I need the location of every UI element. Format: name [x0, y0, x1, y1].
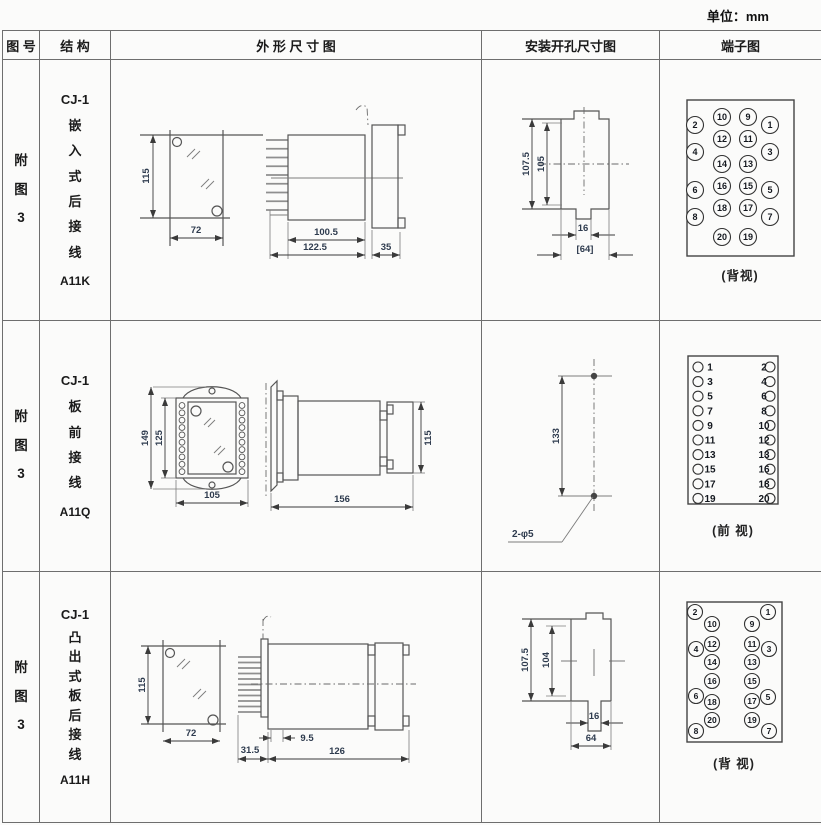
- terminal-number: 2: [693, 607, 698, 617]
- outline-svg-a11h: 115 72 9.5: [111, 572, 481, 822]
- structure-label: 板 前 接 线: [68, 394, 81, 495]
- dim-total-depth: 126: [329, 746, 345, 757]
- screw-hole-icon: [173, 138, 182, 147]
- mounting-svg-a11h: 107.5 104 16 64: [482, 572, 659, 822]
- dim-notch-width: 16: [589, 711, 600, 722]
- terminal-number: 17: [704, 479, 716, 490]
- terminal-svg-a11q: 1234567891011121313151617181920 (前 视): [660, 321, 821, 571]
- mounting-svg-a11k: 107.5 105 16 [64]: [482, 60, 659, 320]
- dim-stud-depth: 9.5: [300, 733, 314, 744]
- screw-hole-icon: [212, 206, 222, 216]
- header-fig-no: 图 号: [3, 31, 39, 59]
- terminal-number: 3: [767, 147, 772, 157]
- terminal-view-caption: (背视): [721, 268, 758, 283]
- terminal-svg-a11k: 2109141211314136161558181772019 (背视): [660, 60, 821, 320]
- terminal-number: 15: [743, 181, 753, 191]
- terminal-number: 1: [766, 607, 771, 617]
- dim-flange-depth: 35: [381, 242, 392, 253]
- dim-cutout-width: 64: [586, 733, 597, 744]
- screw-hole-icon: [191, 406, 201, 416]
- terminal-number: 19: [743, 232, 753, 242]
- terminal-number: 19: [747, 715, 757, 725]
- terminal-number: 12: [707, 639, 717, 649]
- terminal-number: 20: [758, 494, 770, 505]
- hatch-mark: [201, 179, 214, 189]
- terminal-number: 7: [767, 726, 772, 736]
- outline-drawing-a11k: 115 72 100.5 122.5: [111, 60, 481, 320]
- terminal-number: 13: [758, 450, 770, 461]
- terminal-number: 9: [750, 619, 755, 629]
- terminal-number: 12: [758, 436, 770, 447]
- terminal-number: 15: [704, 465, 716, 476]
- terminal-number: 5: [766, 692, 771, 702]
- terminal-number: 13: [747, 657, 757, 667]
- terminal-number: 9: [745, 112, 750, 122]
- terminal-number: 17: [747, 696, 757, 706]
- outline-svg-a11k: 115 72 100.5 122.5: [111, 60, 481, 320]
- terminal-number: 11: [743, 134, 753, 144]
- mounting-hole-icon: [591, 373, 597, 379]
- terminal-number: 13: [704, 450, 716, 461]
- terminal-number: 14: [707, 657, 717, 667]
- hole-spec-label: 2-φ5: [512, 529, 534, 540]
- terminal-number: 16: [707, 676, 717, 686]
- model-label: CJ-1: [61, 92, 89, 107]
- dim-side-length: 156: [334, 494, 350, 505]
- dim-cutout-h2: 104: [541, 651, 552, 668]
- terminal-grid: 2109141211314131615618175201987: [688, 605, 777, 739]
- terminal-number: 16: [717, 181, 727, 191]
- header-outline-dims: 外 形 尺 寸 图: [111, 31, 481, 59]
- fig-no-a11q: 附 图 3: [3, 321, 39, 571]
- terminal-pin: [693, 406, 703, 416]
- dim-side-height: 115: [423, 430, 434, 446]
- code-label: A11Q: [60, 505, 91, 519]
- terminal-number: 20: [707, 715, 717, 725]
- dim-front-height: 115: [137, 677, 148, 693]
- datasheet-page: 单位：mm 图 号 结 构 外 形 尺 寸 图 安装开孔尺寸图 端子图 附 图 …: [0, 0, 821, 825]
- terminal-number: 3: [707, 377, 713, 388]
- terminal-number: 19: [704, 494, 716, 505]
- hatch-mark: [177, 659, 190, 669]
- structure-a11k: CJ-1 嵌 入 式 后 接 线 A11K: [40, 60, 110, 320]
- header-terminal-diagram: 端子图: [660, 31, 821, 59]
- terminal-number: 17: [743, 203, 753, 213]
- terminal-number: 10: [717, 112, 727, 122]
- dim-cutout-h2: 105: [536, 155, 547, 172]
- dim-hole-pitch: 133: [551, 428, 562, 444]
- mounting-drawing-a11h: 107.5 104 16 64: [482, 572, 659, 822]
- code-label: A11K: [60, 274, 90, 288]
- terminal-grid: 2109141211314136161558181772019: [687, 109, 779, 246]
- model-label: CJ-1: [61, 373, 89, 388]
- terminal-grid: 1234567891011121313151617181920: [693, 362, 775, 505]
- terminal-pin: [693, 479, 703, 489]
- panel-centerline: [356, 106, 368, 125]
- terminal-svg-a11h: 2109141211314131615618175201987 (背 视): [660, 572, 821, 822]
- terminal-number: 1: [767, 120, 772, 130]
- terminal-pin: [693, 464, 703, 474]
- dim-notch-width: 16: [578, 223, 589, 234]
- terminal-pins-comb: [266, 140, 288, 210]
- outline-drawing-a11h: 115 72 9.5: [111, 572, 481, 822]
- terminal-pin: [693, 362, 703, 372]
- code-label: A11H: [60, 773, 90, 787]
- terminal-number: 20: [717, 232, 727, 242]
- dim-body-depth: 100.5: [314, 227, 338, 238]
- fig-no-a11h: 附 图 3: [3, 572, 39, 822]
- terminal-pin: [693, 450, 703, 460]
- panel-centerline: [263, 616, 271, 639]
- terminal-number: 5: [707, 392, 713, 403]
- terminal-number: 18: [758, 479, 770, 490]
- terminal-drawing-a11k: 2109141211314136161558181772019 (背视): [660, 60, 821, 320]
- dim-front-height-outer: 149: [140, 430, 151, 446]
- terminal-number: 8: [761, 406, 767, 417]
- structure-label: 嵌 入 式 后 接 线: [68, 113, 81, 265]
- terminal-number: 4: [761, 377, 767, 388]
- structure-a11h: CJ-1 凸 出 式 板 后 接 线 A11H: [40, 572, 110, 822]
- flange-hole-icon: [209, 388, 215, 394]
- fig-no-a11k: 附 图 3: [3, 60, 39, 320]
- dim-front-width: 72: [191, 225, 202, 236]
- outline-drawing-a11q: 149 125 105: [111, 321, 481, 571]
- terminal-number: 7: [767, 212, 772, 222]
- hatch-mark: [214, 446, 225, 455]
- mounting-svg-a11q: 133 2-φ5: [482, 321, 659, 571]
- terminal-pin: [693, 391, 703, 401]
- dim-front-height: 115: [141, 168, 152, 184]
- terminal-number: 15: [747, 676, 757, 686]
- mounting-drawing-a11q: 133 2-φ5: [482, 321, 659, 571]
- dim-cutout-width: [64]: [577, 244, 594, 255]
- terminal-number: 10: [758, 421, 770, 432]
- outline-svg-a11q: 149 125 105: [111, 321, 481, 571]
- terminal-number: 2: [692, 120, 697, 130]
- flange-hole-icon: [209, 482, 215, 488]
- terminal-drawing-a11h: 2109141211314131615618175201987 (背 视): [660, 572, 821, 822]
- terminal-number: 14: [717, 159, 727, 169]
- hatch-mark: [204, 418, 215, 427]
- terminal-number: 18: [717, 203, 727, 213]
- terminal-number: 5: [767, 185, 772, 195]
- dim-cutout-h1: 107.5: [520, 647, 531, 671]
- terminal-pin: [693, 493, 703, 503]
- hatch-mark: [187, 149, 200, 159]
- terminal-strip-right: [239, 403, 245, 475]
- screw-hole-icon: [223, 462, 233, 472]
- dim-front-width: 105: [204, 490, 221, 501]
- terminal-pin: [693, 435, 703, 445]
- dim-cutout-h1: 107.5: [521, 151, 532, 175]
- terminal-number: 18: [707, 697, 717, 707]
- dim-front-width: 72: [186, 728, 197, 739]
- structure-a11q: CJ-1 板 前 接 线 A11Q: [40, 321, 110, 571]
- terminal-number: 4: [692, 147, 697, 157]
- terminal-number: 2: [761, 363, 767, 374]
- terminal-number: 10: [707, 619, 717, 629]
- unit-label: 单位：mm: [707, 6, 769, 25]
- dim-total-depth: 122.5: [303, 242, 327, 253]
- terminal-pin: [693, 420, 703, 430]
- spec-table: 图 号 结 构 外 形 尺 寸 图 安装开孔尺寸图 端子图 附 图 3 CJ-1…: [2, 30, 821, 823]
- terminal-pins-comb: [238, 657, 261, 712]
- terminal-number: 12: [717, 134, 727, 144]
- terminal-number: 6: [692, 185, 697, 195]
- terminal-number: 3: [767, 644, 772, 654]
- dim-front-height-inner: 125: [154, 429, 165, 446]
- hatch-mark: [193, 689, 206, 699]
- model-label: CJ-1: [61, 607, 89, 622]
- terminal-pin: [693, 377, 703, 387]
- terminal-number: 11: [705, 436, 716, 447]
- terminal-number: 4: [694, 644, 699, 654]
- terminal-drawing-a11q: 1234567891011121313151617181920 (前 视): [660, 321, 821, 571]
- terminal-number: 8: [692, 212, 697, 222]
- terminal-number: 6: [761, 392, 767, 403]
- screw-hole-icon: [166, 649, 175, 658]
- terminal-view-caption: (背 视): [713, 756, 755, 771]
- mounting-drawing-a11k: 107.5 105 16 [64]: [482, 60, 659, 320]
- terminal-number: 16: [758, 465, 770, 476]
- dim-pin-depth: 31.5: [241, 745, 260, 756]
- terminal-strip-left: [179, 403, 185, 475]
- terminal-number: 8: [694, 726, 699, 736]
- terminal-view-caption: (前 视): [712, 523, 754, 538]
- terminal-number: 13: [743, 159, 753, 169]
- terminal-number: 9: [707, 421, 713, 432]
- terminal-number: 6: [694, 691, 699, 701]
- header-mounting-dims: 安装开孔尺寸图: [482, 31, 659, 59]
- terminal-number: 11: [748, 639, 757, 649]
- header-structure: 结 构: [40, 31, 110, 59]
- structure-label: 凸 出 式 板 后 接 线: [68, 628, 81, 765]
- terminal-number: 7: [707, 406, 713, 417]
- terminal-number: 1: [707, 363, 713, 374]
